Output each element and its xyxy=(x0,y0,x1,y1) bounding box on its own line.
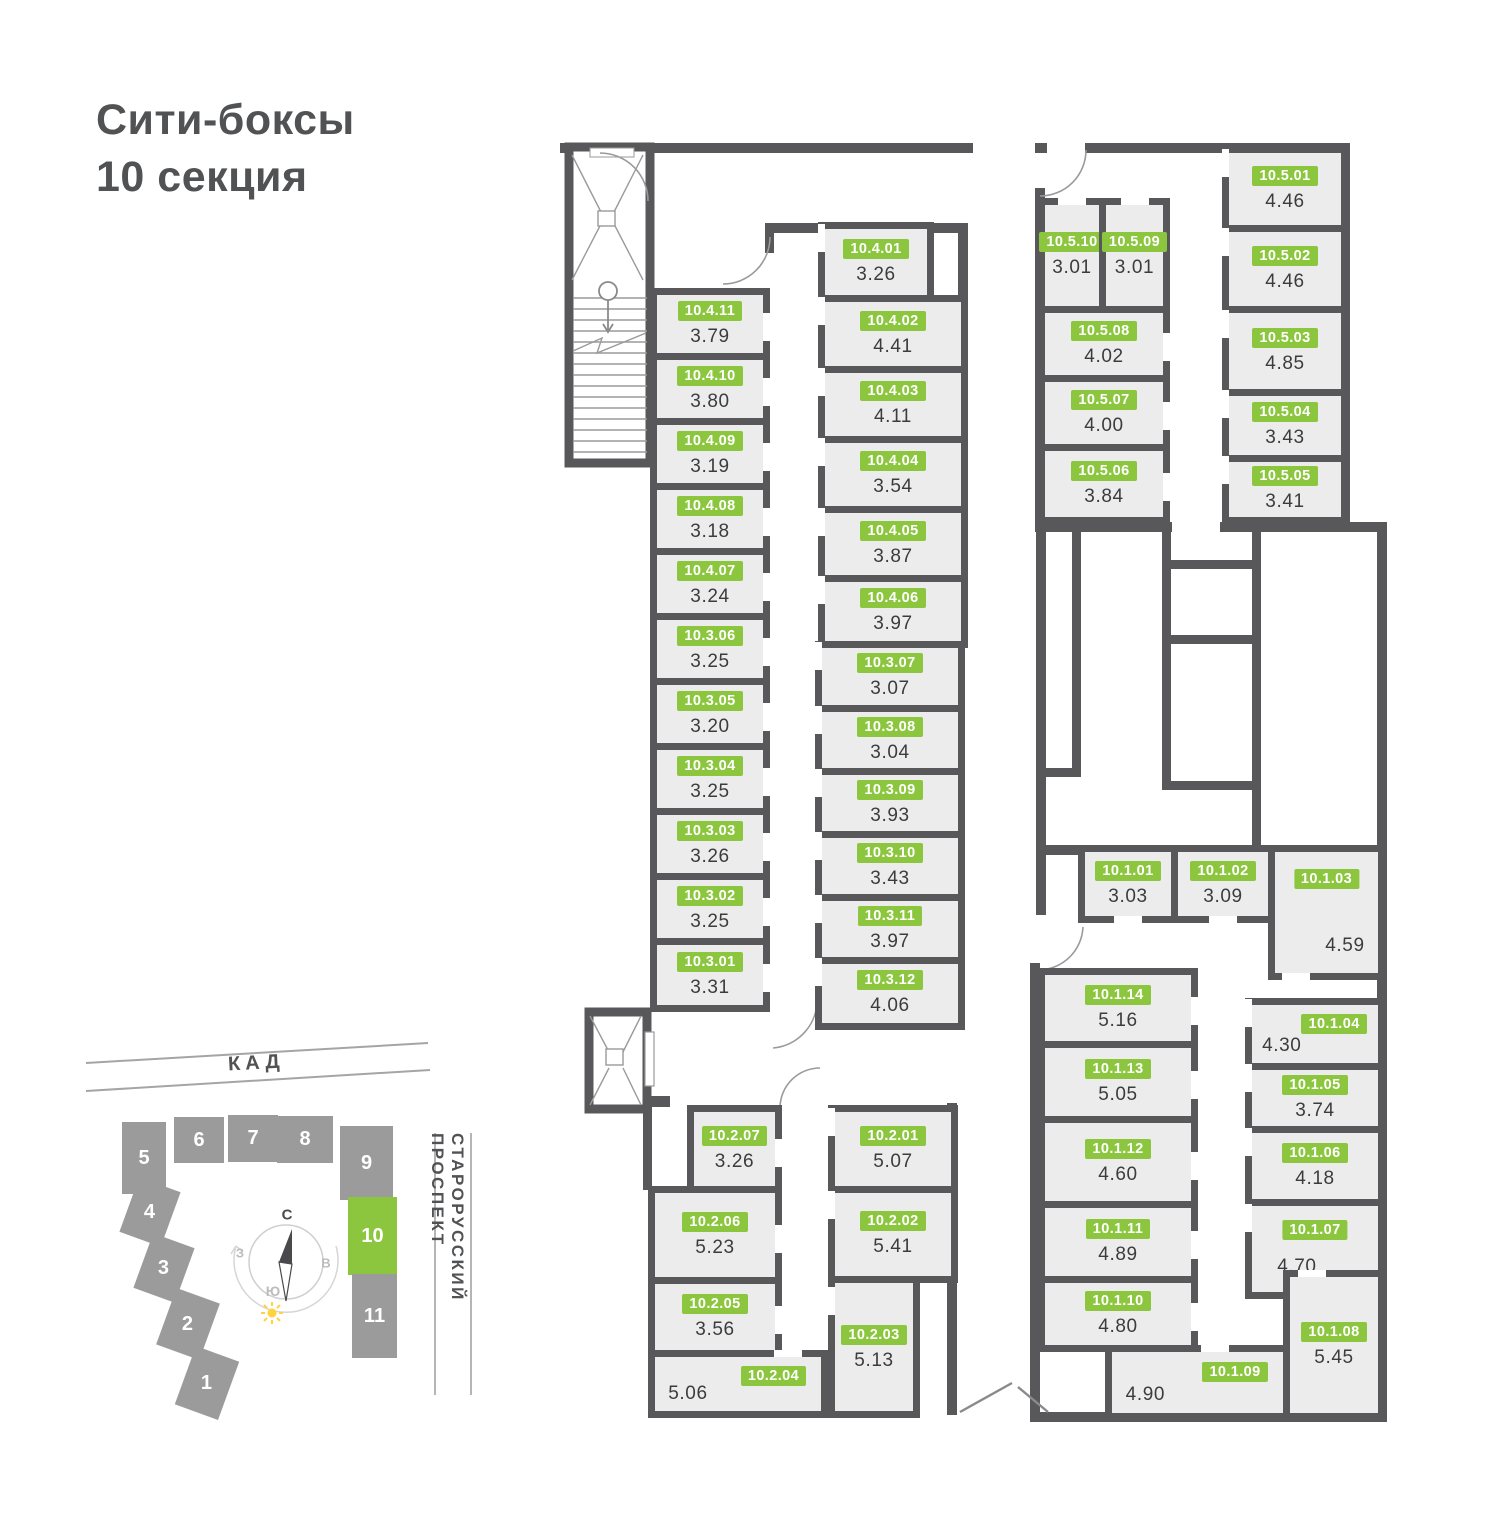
site-building-label: 10 xyxy=(361,1225,383,1248)
site-building-label: 2 xyxy=(182,1313,193,1336)
site-building-label: 6 xyxy=(193,1129,204,1152)
site-building-label: 1 xyxy=(201,1372,212,1395)
site-building-10[interactable]: 10 xyxy=(348,1197,397,1275)
site-building-1[interactable]: 1 xyxy=(175,1346,239,1420)
compass-south-label: Ю xyxy=(266,1283,280,1299)
site-building-label: 7 xyxy=(247,1127,258,1150)
floorplan-page: Сити-боксы 10 секция xyxy=(0,0,1489,1536)
site-building-label: 11 xyxy=(364,1305,385,1328)
compass-north-label: С xyxy=(282,1207,293,1224)
site-plan-buildings: 5678910114321 xyxy=(0,0,1489,1536)
site-building-label: 5 xyxy=(138,1147,149,1170)
site-building-label: 8 xyxy=(299,1128,310,1151)
site-building-label: 4 xyxy=(144,1201,155,1224)
site-building-11[interactable]: 11 xyxy=(352,1274,397,1358)
compass-west-label: З xyxy=(236,1246,244,1261)
road-label-kad: КАД xyxy=(227,1051,285,1077)
site-building-8[interactable]: 8 xyxy=(277,1116,333,1163)
site-building-7[interactable]: 7 xyxy=(228,1115,278,1162)
compass-east-label: В xyxy=(321,1256,330,1271)
street-label: СТАРОРУССКИЙ ПРОСПЕКТ xyxy=(424,1133,470,1395)
site-building-label: 9 xyxy=(361,1152,372,1175)
site-building-9[interactable]: 9 xyxy=(340,1126,393,1200)
site-building-6[interactable]: 6 xyxy=(174,1117,224,1163)
site-building-label: 3 xyxy=(158,1257,169,1280)
